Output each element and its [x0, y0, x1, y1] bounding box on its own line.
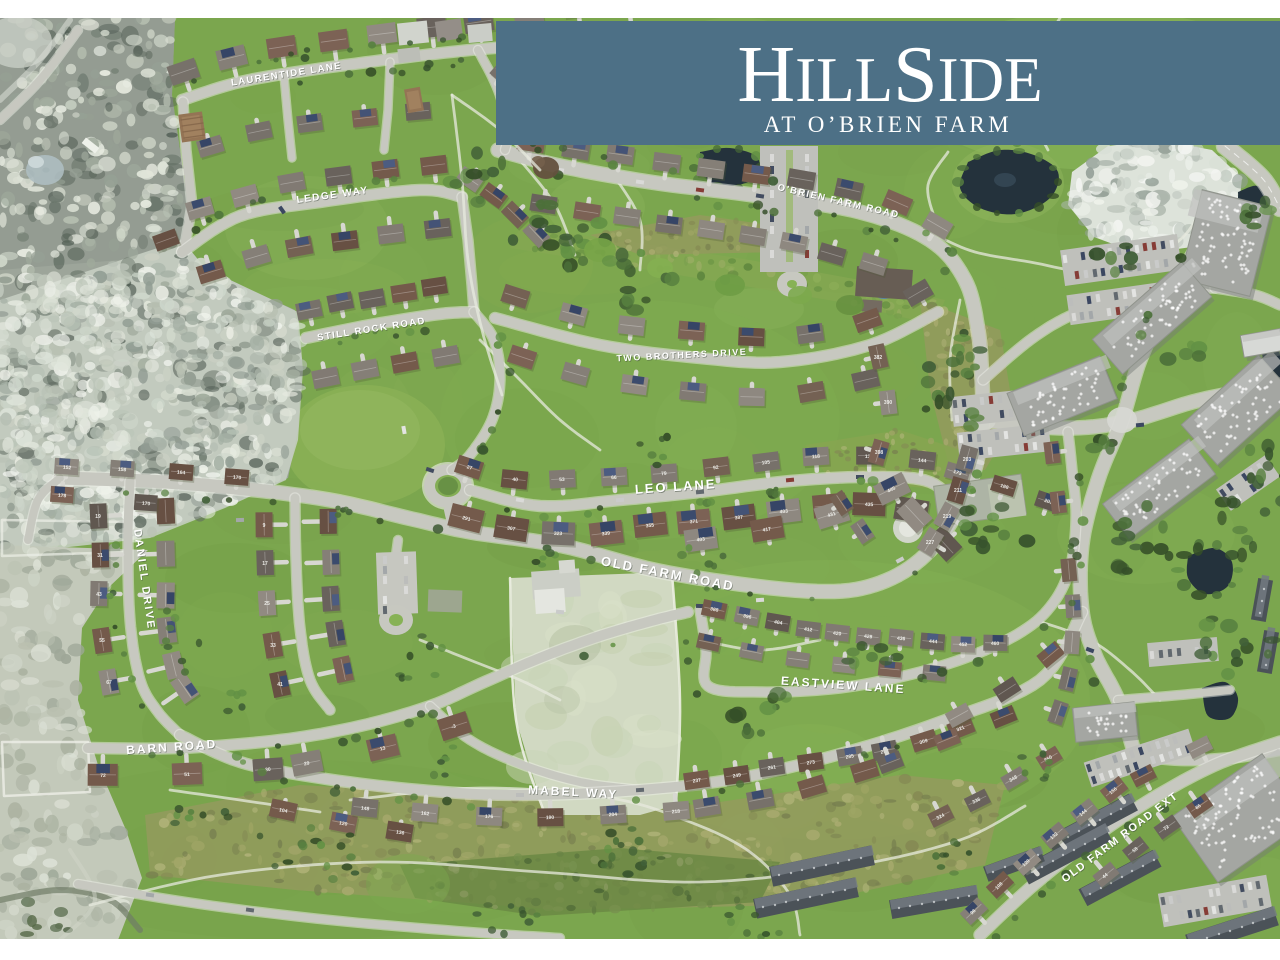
svg-text:HILLSIDE: HILLSIDE — [737, 31, 1042, 119]
svg-text:AT O’BRIEN FARM: AT O’BRIEN FARM — [764, 112, 1012, 137]
